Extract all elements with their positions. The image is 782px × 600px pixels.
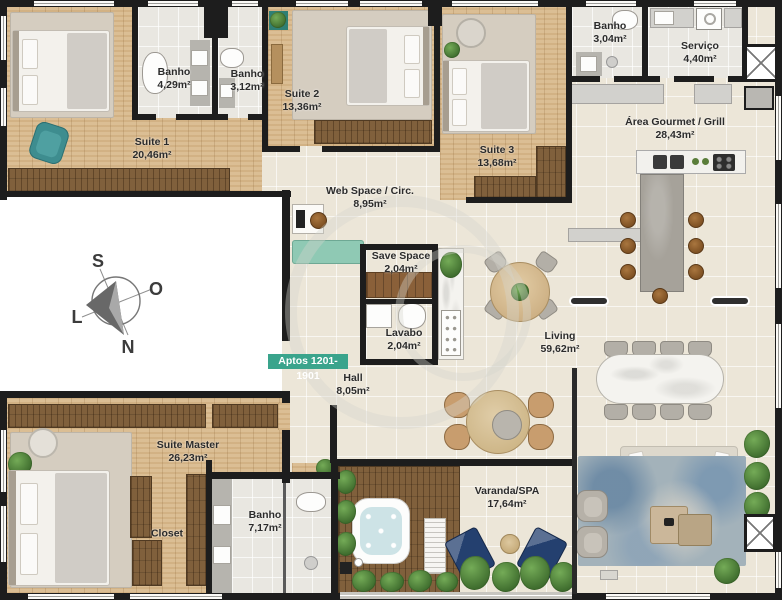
window (694, 1, 736, 6)
room-area: 59,62m² (540, 343, 579, 356)
room-area: 26,23m² (157, 452, 219, 465)
bar-stool (688, 212, 704, 228)
window (130, 594, 222, 599)
wall (132, 0, 138, 120)
banho3-shower-head (606, 56, 618, 68)
cooktop (713, 154, 735, 171)
compass-label-n: N (122, 337, 135, 357)
window (776, 324, 781, 408)
window (606, 594, 710, 599)
room-name: Lavabo (386, 327, 423, 340)
suite3-bed-pillow (452, 99, 467, 126)
room-label-living: Living 59,62m² (540, 330, 579, 356)
living-armchair (576, 526, 608, 558)
floor-vent (710, 296, 750, 306)
wall (572, 368, 577, 594)
room-label-varanda: Varanda/SPA 17,64m² (475, 485, 540, 511)
room-label-gourmet: Área Gourmet / Grill 28,43m² (625, 116, 725, 142)
room-name: Suite Master (157, 439, 219, 452)
suite-master-bed-headboard (9, 471, 16, 585)
room-area: 13,68m² (477, 157, 516, 170)
suite1-bed (12, 30, 110, 112)
wall (0, 391, 290, 398)
room-name: Living (540, 330, 579, 343)
room-name: Suite 2 (282, 88, 321, 101)
servico-tank (654, 11, 674, 25)
island-stone-table (640, 174, 684, 292)
room-area: 3,04m² (593, 33, 626, 46)
banho-master-toilet (296, 492, 326, 512)
room-area: 2,04m² (372, 263, 430, 276)
varanda-chair (528, 424, 554, 450)
suite1-bed-headboard (13, 31, 19, 111)
suite3-wardrobe (536, 146, 566, 198)
banho-master-partition (283, 483, 286, 593)
room-label-lavabo: Lavabo 2,04m² (386, 327, 423, 353)
window (776, 204, 781, 288)
banho-master-vanity (212, 477, 232, 594)
room-area: 3,12m² (230, 81, 263, 94)
grill-counter (568, 84, 664, 104)
wall (331, 459, 338, 594)
elevator (744, 44, 778, 82)
island-sink (670, 155, 684, 169)
suite-master-balcony-deck (8, 404, 206, 428)
suite2-bed-blanket (349, 29, 387, 103)
bar-stool (620, 264, 636, 280)
window (586, 1, 636, 6)
room-name: Hall (336, 372, 369, 385)
room-name: Área Gourmet / Grill (625, 116, 725, 129)
banho3-sink (580, 56, 597, 72)
window (232, 1, 258, 6)
room-area: 7,17m² (248, 522, 281, 535)
window (776, 96, 781, 160)
suite3-bed-pillow (452, 68, 467, 95)
room-area: 2,04m² (386, 340, 423, 353)
suite3-pouf (456, 18, 486, 48)
room-area: 8,05m² (336, 385, 369, 398)
room-label-servico: Serviço 4,40m² (681, 40, 719, 66)
coffee-table (678, 514, 712, 546)
window (360, 1, 422, 6)
suite-master-bed-pillow (20, 533, 38, 575)
wall (0, 191, 291, 197)
wall (466, 197, 572, 203)
window (1, 16, 6, 60)
wall (674, 76, 714, 82)
floor-lamp (354, 558, 363, 567)
suite-master-pouf (28, 428, 58, 458)
coffee-table-tray (664, 518, 674, 526)
floor-plan: S O L N Aptos 1201-1901 Suite 1 20,46m² … (0, 0, 782, 600)
varanda-chair (528, 392, 554, 418)
grill-counter (694, 84, 732, 104)
room-name: Banho (157, 66, 190, 79)
room-label-hall: Hall 8,05m² (336, 372, 369, 398)
room-name: Suite 3 (477, 144, 516, 157)
window (148, 1, 198, 6)
suite-master-bed-pillow (20, 483, 38, 525)
room-area: 28,43m² (625, 129, 725, 142)
wall (206, 460, 212, 594)
varanda-railing (340, 592, 572, 599)
room-name: Web Space / Circ. (326, 185, 414, 198)
suite2-balcony-deck (314, 120, 432, 144)
bar-stool (620, 238, 636, 254)
side-cube (340, 562, 352, 574)
suite2-bed (346, 26, 430, 106)
suite1-bed-pillow (22, 39, 38, 69)
dining-table (596, 354, 724, 404)
wall (262, 146, 300, 152)
room-label-webspace: Web Space / Circ. 8,95m² (326, 185, 414, 211)
compass-label-s: S (92, 251, 104, 271)
island-sink (653, 155, 667, 169)
room-label-banho2: Banho 3,12m² (230, 68, 263, 94)
room-area: 20,46m² (132, 149, 171, 162)
wall (614, 76, 660, 82)
washing-machine (696, 8, 722, 30)
room-label-banho3: Banho 3,04m² (593, 20, 626, 46)
suite1-balcony-deck (8, 168, 230, 192)
elevator (744, 514, 776, 552)
room-name: Banho (593, 20, 626, 33)
window (34, 1, 114, 6)
compass-rose: S O L N (58, 243, 174, 359)
island-counter (636, 150, 746, 174)
room-name: Closet (151, 527, 183, 540)
banho-master-shower-head (304, 556, 318, 570)
sun-lounger (424, 518, 446, 574)
window (1, 88, 6, 126)
window (1, 430, 6, 492)
wall (642, 0, 648, 82)
suite3-bed-blanket (481, 63, 527, 129)
window (1, 506, 6, 562)
jacuzzi (352, 498, 410, 564)
wall (0, 391, 7, 600)
wall (248, 114, 262, 120)
room-label-banho-master: Banho 7,17m² (248, 509, 281, 535)
suite3-bed-headboard (443, 61, 449, 131)
wall (566, 0, 572, 203)
closet-wardrobe (186, 474, 208, 586)
room-label-suite-master: Suite Master 26,23m² (157, 439, 219, 465)
servico-counter (724, 8, 742, 28)
closet-wardrobe (132, 540, 162, 586)
hall-door-threshold (278, 403, 290, 430)
room-name: Banho (248, 509, 281, 522)
room-label-suite3: Suite 3 13,68m² (477, 144, 516, 170)
suite3-balcony-deck (474, 176, 536, 198)
suite3-bed (442, 60, 530, 132)
room-name: Serviço (681, 40, 719, 53)
window (776, 552, 781, 588)
bar-stool (652, 288, 668, 304)
suite-master-balcony-deck (212, 404, 278, 428)
wall (322, 146, 440, 152)
suite2-bed-pillow (404, 35, 420, 64)
web-monitor (296, 210, 305, 228)
room-area: 17,64m² (475, 498, 540, 511)
room-area: 8,95m² (326, 198, 414, 211)
room-name: Banho (230, 68, 263, 81)
room-area: 4,29m² (157, 79, 190, 92)
bar-stool (688, 238, 704, 254)
suite-master-bed (8, 470, 110, 586)
room-label-closet: Closet (151, 527, 183, 540)
bar-stool (688, 264, 704, 280)
room-area: 13,36m² (282, 101, 321, 114)
wall (282, 391, 290, 403)
compass-label-o: O (149, 279, 163, 299)
varanda-table-top (492, 410, 522, 440)
banho1-sink (191, 50, 208, 66)
wall (176, 114, 228, 120)
suite-master-bed-blanket (55, 473, 107, 583)
window (296, 1, 348, 6)
window (452, 1, 538, 6)
living-armchair-cushion (584, 497, 602, 517)
banho-master-sink (213, 546, 231, 564)
dining-chair (604, 404, 628, 420)
suite1-bed-pillow (22, 75, 38, 105)
suite1-armchair-cushion (35, 129, 63, 159)
wall (212, 0, 218, 120)
room-name: Varanda/SPA (475, 485, 540, 498)
suite2-tv-cabinet (271, 44, 283, 84)
living-armchair-cushion (584, 533, 602, 553)
jacuzzi-water (360, 507, 402, 555)
bar-stool (620, 212, 636, 228)
room-label-suite2: Suite 2 13,36m² (282, 88, 321, 114)
spa-side-table (500, 534, 520, 554)
wall (434, 0, 440, 152)
room-area: 4,40m² (681, 53, 719, 66)
room-name: Save Space (372, 250, 430, 263)
suite2-bed-pillow (404, 69, 420, 98)
media-unit (600, 570, 618, 580)
banho-master-sink (213, 505, 231, 525)
wall (775, 0, 782, 600)
banho1-sink (191, 80, 208, 96)
washing-machine-door (704, 13, 716, 25)
suite1-bed-blanket (67, 33, 107, 109)
wall (337, 459, 575, 466)
room-label-banho1: Banho 4,29m² (157, 66, 190, 92)
room-name: Suite 1 (132, 136, 171, 149)
wall (212, 472, 340, 479)
apartment-badge: Aptos 1201-1901 (268, 354, 348, 369)
window (28, 594, 114, 599)
island-herbs (692, 158, 699, 165)
room-label-savespace: Save Space 2,04m² (372, 250, 430, 276)
dining-chair (688, 404, 712, 420)
dining-chair (660, 404, 684, 420)
island-herbs (702, 158, 709, 165)
suite2-bed-headboard (423, 27, 429, 105)
dining-chair (632, 404, 656, 420)
living-armchair (576, 490, 608, 522)
wall (132, 114, 156, 120)
floor-vent (569, 296, 609, 306)
compass-label-l: L (72, 307, 83, 327)
room-label-suite1: Suite 1 20,46m² (132, 136, 171, 162)
wall (566, 76, 600, 82)
shaft (744, 86, 774, 110)
wall (330, 405, 337, 463)
banho2-toilet (220, 48, 244, 68)
closet-wardrobe (130, 476, 152, 538)
